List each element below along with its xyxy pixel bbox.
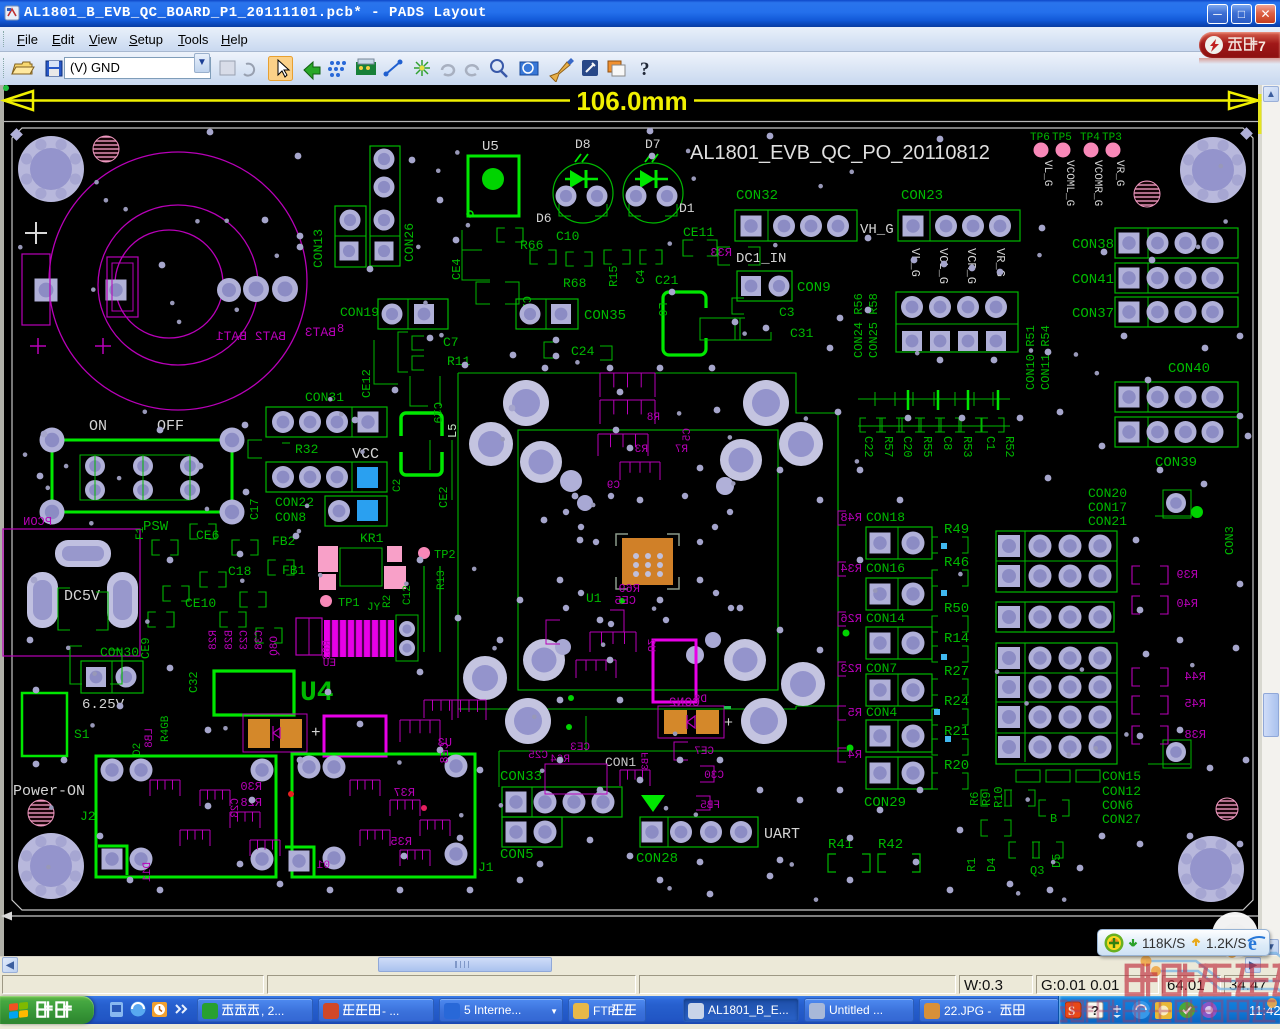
svg-text:CON19: CON19 — [340, 305, 379, 320]
svg-text:FB2: FB2 — [272, 534, 295, 549]
svg-text:S1: S1 — [74, 727, 90, 742]
svg-text:CON28: CON28 — [636, 851, 678, 867]
svg-text:01: 01 — [316, 860, 330, 872]
svg-text:CON8: CON8 — [275, 510, 306, 525]
svg-text:R42: R42 — [878, 837, 903, 853]
svg-text:C7: C7 — [443, 335, 459, 350]
svg-text:D11: D11 — [142, 862, 154, 882]
svg-text:R5: R5 — [848, 706, 862, 720]
svg-text:R7: R7 — [675, 444, 688, 456]
svg-text:?: ? — [1091, 1003, 1099, 1018]
svg-text:7: 7 — [1258, 38, 1266, 54]
svg-text:TP4: TP4 — [1080, 132, 1100, 144]
svg-text:CE4: CE4 — [450, 258, 464, 280]
svg-text:R50: R50 — [944, 601, 969, 617]
svg-text:R45: R45 — [1184, 697, 1206, 711]
svg-text:R46: R46 — [944, 555, 969, 571]
svg-text:BAT3: BAT3 — [305, 325, 336, 340]
svg-text:C23: C23 — [239, 630, 251, 650]
svg-text:C10: C10 — [556, 229, 579, 244]
svg-text:CON26: CON26 — [402, 223, 417, 262]
svg-text:R28: R28 — [208, 630, 220, 650]
svg-text:R23: R23 — [840, 662, 862, 676]
svg-text:?: ? — [640, 59, 650, 80]
svg-text:CON14: CON14 — [866, 611, 905, 626]
svg-text:CON25 R58: CON25 R58 — [867, 293, 881, 358]
svg-text:C5: C5 — [682, 428, 694, 441]
svg-text:D7: D7 — [645, 137, 661, 152]
svg-text:C18: C18 — [228, 564, 251, 579]
svg-text:CE2: CE2 — [437, 486, 451, 508]
svg-text:CON4: CON4 — [866, 705, 897, 720]
svg-text:106.0mm: 106.0mm — [576, 86, 687, 116]
svg-text:22.JPG -: 22.JPG - — [944, 1004, 991, 1018]
svg-text:C25: C25 — [528, 750, 548, 762]
svg-text:CON5: CON5 — [500, 847, 534, 863]
svg-text:D1: D1 — [679, 201, 695, 216]
svg-text:VR_G: VR_G — [1113, 160, 1125, 186]
svg-text:CON31: CON31 — [305, 390, 344, 405]
svg-text:S: S — [1068, 1003, 1075, 1018]
svg-text:118K/S: 118K/S — [1142, 936, 1185, 951]
svg-text:CON21: CON21 — [1088, 514, 1127, 529]
svg-text:KR1: KR1 — [360, 531, 384, 546]
svg-text:R52: R52 — [1002, 436, 1016, 458]
svg-text:R26: R26 — [840, 612, 862, 626]
svg-text:D2: D2 — [132, 743, 144, 756]
svg-text:C17: C17 — [248, 498, 262, 520]
svg-text:R34: R34 — [840, 562, 862, 576]
svg-text:TP2: TP2 — [434, 548, 456, 562]
svg-text:CON9: CON9 — [797, 280, 831, 296]
svg-text:CON16: CON16 — [866, 561, 905, 576]
svg-text:CON37: CON37 — [1072, 306, 1114, 322]
svg-text:R35: R35 — [390, 835, 412, 849]
svg-text:R27: R27 — [944, 664, 969, 680]
svg-text:CON27: CON27 — [1102, 812, 1141, 827]
svg-text:FTP: FTP — [593, 1004, 616, 1018]
svg-text:D8: D8 — [575, 137, 591, 152]
svg-text:TP3: TP3 — [1102, 132, 1122, 144]
svg-text:R44: R44 — [1184, 670, 1206, 684]
svg-text:CON12: CON12 — [1102, 784, 1141, 799]
svg-text:C8: C8 — [940, 436, 954, 450]
svg-text:R33: R33 — [710, 246, 732, 260]
svg-text:e: e — [1248, 933, 1257, 954]
svg-text:C31: C31 — [790, 326, 814, 341]
svg-text:EU: EU — [323, 658, 336, 670]
svg-text:C24: C24 — [571, 344, 595, 359]
svg-text:C12: C12 — [402, 585, 414, 605]
svg-text:VCOML_G: VCOML_G — [1063, 160, 1075, 206]
svg-text:CE12: CE12 — [360, 369, 374, 398]
svg-text:CON23: CON23 — [901, 188, 943, 204]
svg-text:TP1: TP1 — [338, 596, 360, 610]
svg-text:CON1: CON1 — [605, 755, 636, 770]
svg-text:Power-ON: Power-ON — [13, 783, 85, 800]
svg-text:, 2...: , 2... — [261, 1004, 284, 1018]
svg-text:R14: R14 — [944, 631, 969, 647]
svg-text:FB3: FB3 — [641, 752, 652, 770]
svg-text:CON41: CON41 — [1072, 272, 1114, 288]
svg-text:F1: F1 — [135, 526, 147, 540]
svg-text:BAT2 BAT1: BAT2 BAT1 — [216, 329, 286, 344]
svg-text:B: B — [1050, 812, 1057, 826]
svg-text:CE10: CE10 — [185, 596, 216, 611]
svg-text:TP5: TP5 — [1052, 132, 1072, 144]
svg-text:R10: R10 — [992, 786, 1006, 808]
svg-text:1.2K/S: 1.2K/S — [1206, 936, 1247, 951]
svg-text:CON20: CON20 — [1088, 486, 1127, 501]
svg-text:ON: ON — [89, 418, 107, 435]
svg-text:CON3: CON3 — [1223, 526, 1237, 555]
svg-text:LB8: LB8 — [144, 728, 156, 748]
svg-text:UART: UART — [764, 826, 800, 843]
svg-text:FB1: FB1 — [282, 563, 306, 578]
svg-text:CON30: CON30 — [100, 645, 139, 660]
svg-text:D9: D9 — [694, 694, 707, 706]
svg-text:CON18: CON18 — [866, 510, 905, 525]
svg-text:DC1_IN: DC1_IN — [736, 251, 786, 267]
svg-text:CE11: CE11 — [683, 225, 714, 240]
svg-text:C4: C4 — [634, 270, 648, 284]
svg-text:8: 8 — [337, 322, 344, 336]
svg-text:D6: D6 — [536, 211, 552, 226]
svg-text:R13: R13 — [436, 570, 448, 590]
svg-text:CON13: CON13 — [311, 229, 326, 268]
svg-text:J1: J1 — [478, 860, 494, 875]
svg-text:R37: R37 — [393, 786, 415, 800]
svg-text:CE3: CE3 — [570, 742, 590, 754]
svg-text:R55: R55 — [920, 436, 934, 458]
svg-text:CON32: CON32 — [736, 188, 778, 204]
svg-text:R8: R8 — [647, 412, 660, 424]
svg-text:U1: U1 — [586, 591, 602, 606]
svg-text:CON6: CON6 — [1102, 798, 1133, 813]
svg-text:U5: U5 — [482, 139, 499, 155]
svg-text:CE9: CE9 — [139, 637, 153, 659]
svg-text:R32: R32 — [295, 442, 318, 457]
svg-text:R15: R15 — [607, 265, 621, 287]
svg-text:C32: C32 — [187, 671, 201, 693]
svg-text:CON17: CON17 — [1088, 500, 1127, 515]
svg-text:TP6: TP6 — [1030, 132, 1050, 144]
svg-text:R20: R20 — [944, 758, 969, 774]
svg-text:CON33: CON33 — [500, 769, 542, 785]
svg-text:R57: R57 — [881, 436, 895, 458]
svg-text:C3: C3 — [779, 305, 795, 320]
svg-text:U2: U2 — [644, 639, 656, 652]
svg-text:R4GB: R4GB — [160, 715, 172, 742]
svg-text:R3: R3 — [635, 444, 648, 456]
svg-text:CON35: CON35 — [584, 308, 626, 324]
svg-text:AL1801_EVB_QC_PO_20110812: AL1801_EVB_QC_PO_20110812 — [690, 142, 990, 164]
svg-text:R48: R48 — [840, 511, 862, 525]
svg-text:R49: R49 — [944, 522, 969, 538]
svg-text:C23: C23 — [230, 798, 242, 818]
svg-text:CON24 R56: CON24 R56 — [852, 293, 866, 358]
svg-text:R1: R1 — [965, 858, 979, 872]
svg-text:B28: B28 — [224, 630, 236, 650]
svg-text:Q3: Q3 — [1030, 864, 1044, 878]
svg-text:CON15: CON15 — [1102, 769, 1141, 784]
svg-text:VL_G: VL_G — [1041, 160, 1053, 186]
svg-text:CON38: CON38 — [1072, 237, 1114, 253]
svg-text:CON10 R51: CON10 R51 — [1024, 325, 1038, 390]
svg-text:J2: J2 — [80, 809, 96, 824]
svg-text:R68: R68 — [563, 276, 586, 291]
svg-text:+: + — [311, 724, 321, 742]
svg-text:C2: C2 — [392, 479, 404, 492]
svg-text:R2: R2 — [382, 595, 394, 608]
svg-text:R63: R63 — [322, 640, 334, 660]
svg-text:C9: C9 — [607, 480, 620, 492]
svg-text:R40: R40 — [1176, 597, 1198, 611]
svg-text:C1: C1 — [983, 436, 997, 450]
svg-text:R38: R38 — [1184, 728, 1206, 742]
svg-text:VCC: VCC — [352, 446, 379, 463]
svg-text:C22: C22 — [861, 436, 875, 458]
svg-text:PCON: PCON — [23, 515, 52, 529]
svg-text:R4: R4 — [848, 748, 862, 762]
svg-text:CE7: CE7 — [694, 746, 714, 758]
svg-text:C38: C38 — [254, 630, 266, 650]
svg-text:DC5V: DC5V — [64, 588, 100, 605]
svg-text:- ...: - ... — [382, 1004, 399, 1018]
svg-text:R53: R53 — [960, 436, 974, 458]
svg-text:JY: JY — [367, 602, 381, 614]
svg-text:O8Q: O8Q — [269, 636, 281, 656]
svg-text:D4: D4 — [985, 858, 999, 872]
svg-text:CON29: CON29 — [864, 795, 906, 811]
svg-text:VCOMR_G: VCOMR_G — [1091, 160, 1103, 206]
svg-text:CON40: CON40 — [1168, 361, 1210, 377]
svg-text:C19: C19 — [430, 402, 444, 424]
svg-text:VH_G: VH_G — [860, 222, 894, 238]
svg-text:R24: R24 — [944, 694, 969, 710]
svg-text:C21: C21 — [655, 273, 679, 288]
svg-text:L6: L6 — [655, 302, 669, 316]
svg-text:CE5: CE5 — [614, 594, 636, 608]
svg-text:C20: C20 — [900, 436, 914, 458]
svg-text:R39: R39 — [1176, 568, 1198, 582]
svg-text:R30: R30 — [240, 780, 262, 794]
svg-text:CON11 R54: CON11 R54 — [1039, 325, 1053, 390]
svg-text:+: + — [724, 715, 733, 732]
